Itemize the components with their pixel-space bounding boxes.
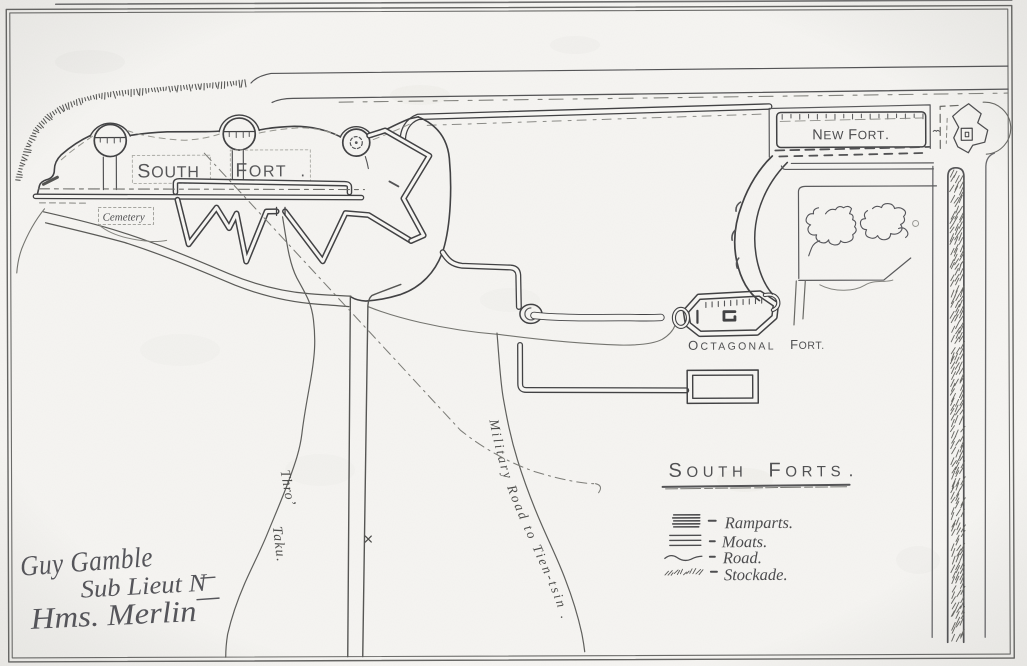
svg-text:SOUTH: SOUTH (137, 160, 199, 182)
svg-text:NEW FORT.: NEW FORT. (812, 127, 890, 143)
svg-text:Stockade.: Stockade. (724, 565, 788, 584)
svg-text:FORT.: FORT. (790, 337, 825, 352)
svg-text:.: . (848, 460, 853, 480)
svg-text:SOUTH: SOUTH (668, 460, 747, 482)
svg-text:Cemetery: Cemetery (103, 211, 145, 223)
svg-text:FORT: FORT (235, 159, 287, 181)
svg-text:.: . (300, 161, 305, 180)
svg-text:FORTS: FORTS (768, 459, 845, 481)
svg-text:Ramparts.: Ramparts. (724, 513, 793, 532)
